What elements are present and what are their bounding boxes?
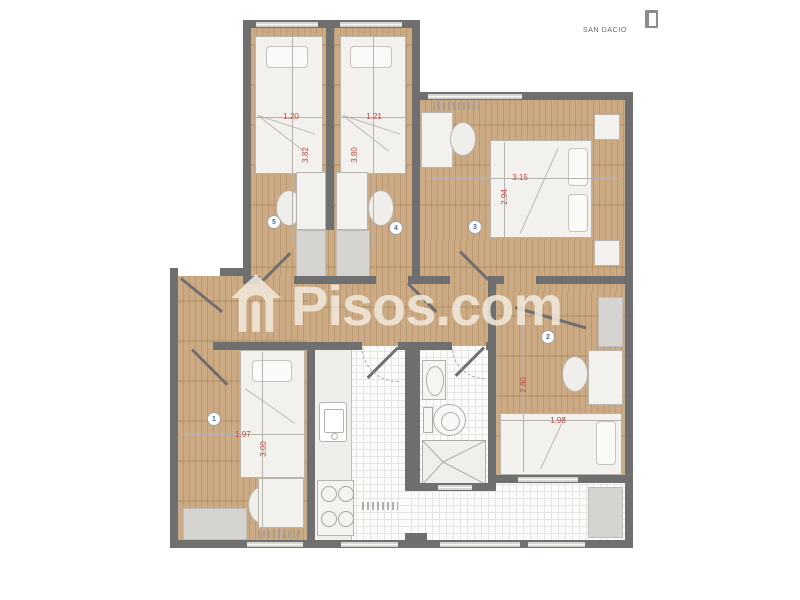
- window-room2-bed: [518, 477, 578, 482]
- room5-desk: [296, 172, 326, 230]
- radiator-room1: [258, 530, 302, 538]
- room4-closet: [336, 230, 370, 278]
- dimension-line: [292, 36, 293, 248]
- stove-burner: [338, 486, 354, 502]
- room5-pillow: [266, 46, 308, 68]
- kitchen-stove: [317, 480, 354, 536]
- stove-burner: [321, 511, 337, 527]
- room3-chair: [450, 122, 476, 156]
- wall-room3-bottom: [420, 276, 450, 284]
- room-number-badge-4: 4: [389, 221, 403, 235]
- washbasin-bowl: [426, 366, 444, 396]
- dim-room3-length: 2.94: [501, 189, 509, 205]
- stove-burner: [321, 486, 337, 502]
- toilet-tank: [423, 407, 433, 433]
- room1-pillow: [252, 360, 292, 382]
- location-label: SAN DACIO: [583, 27, 627, 34]
- bathroom-washbasin: [422, 360, 446, 400]
- dim-room3-width: 3.15: [512, 174, 528, 182]
- room-number-badge-2: 2: [541, 330, 555, 344]
- room-number-badge-1: 1: [207, 412, 221, 426]
- room2-pillow: [596, 421, 616, 465]
- wall-hall-top: [251, 276, 260, 284]
- room1-wardrobe: [183, 508, 247, 540]
- room-number-badge-5: 5: [267, 215, 281, 229]
- room2-desk: [588, 350, 623, 405]
- bathroom-shower: [422, 440, 486, 485]
- wall-divider-rooms-5-4: [326, 28, 334, 230]
- kitchen-sink: [319, 402, 347, 442]
- floor-plan-image: 1.20 3.82 1.21 3.80 3.15 2.94 1.97 3.00 …: [0, 0, 800, 600]
- wall-room1-kitchen-divider: [307, 350, 315, 540]
- dim-room5-width: 1.20: [283, 113, 299, 121]
- kitchen-sink-basin: [324, 409, 344, 433]
- room4-desk: [336, 172, 368, 230]
- window-kitchen-bottom: [341, 542, 398, 547]
- room4-chair: [368, 190, 394, 226]
- dim-room4-width: 1.21: [366, 113, 382, 121]
- dim-room1-width: 1.97: [235, 431, 251, 439]
- room2-closet: [598, 297, 623, 347]
- dim-room2-length: 2.80: [520, 377, 528, 393]
- room3-nightstand: [594, 114, 620, 140]
- room5-closet: [296, 230, 326, 278]
- wall-divider-room4-room3: [412, 20, 420, 284]
- door-icon: [645, 10, 658, 28]
- wall-room3-bottom: [536, 276, 625, 284]
- window-room1-bottom: [247, 542, 303, 547]
- toilet-bowl-inner: [441, 412, 460, 431]
- room3-desk: [421, 112, 453, 168]
- radiator-kitchen: [362, 502, 398, 510]
- room4-pillow: [350, 46, 392, 68]
- kitchen-faucet: [331, 433, 338, 440]
- wall-entry-top: [220, 268, 251, 276]
- window-terrace-bottom: [528, 542, 585, 547]
- wall-kitchen-bath-divider: [405, 346, 420, 491]
- wall-left-outer: [170, 268, 178, 548]
- window-bathroom: [438, 485, 472, 490]
- dim-room2-width: 1.98: [550, 417, 566, 425]
- window-room5: [256, 22, 318, 27]
- window-terrace-bottom: [440, 542, 520, 547]
- room3-pillow: [568, 194, 588, 232]
- dim-room1-length: 3.00: [260, 441, 268, 457]
- room-number-badge-3: 3: [468, 220, 482, 234]
- wall-left-bedrooms: [243, 20, 251, 284]
- dim-room4-length: 3.80: [351, 147, 359, 163]
- wall-room3-bottom: [488, 276, 504, 284]
- toilet-bowl: [433, 404, 466, 436]
- wall-bottom-pillar: [405, 533, 427, 540]
- bathroom-toilet: [423, 404, 467, 436]
- radiator-room3: [433, 102, 479, 110]
- wall-bath-room2-divider: [488, 284, 496, 491]
- room1-desk: [258, 478, 304, 528]
- room3-nightstand: [594, 240, 620, 266]
- window-room4: [340, 22, 402, 27]
- room3-pillow: [568, 148, 588, 186]
- stove-burner: [338, 511, 354, 527]
- wall-hall-top: [294, 276, 376, 284]
- door-icon-panel: [649, 13, 656, 26]
- wall-room1-kitchen-top: [213, 342, 362, 350]
- room2-chair: [562, 356, 588, 392]
- window-room3: [428, 94, 522, 99]
- dim-room5-length: 3.82: [302, 147, 310, 163]
- dimension-line: [373, 36, 374, 248]
- terrace-storage: [588, 487, 623, 538]
